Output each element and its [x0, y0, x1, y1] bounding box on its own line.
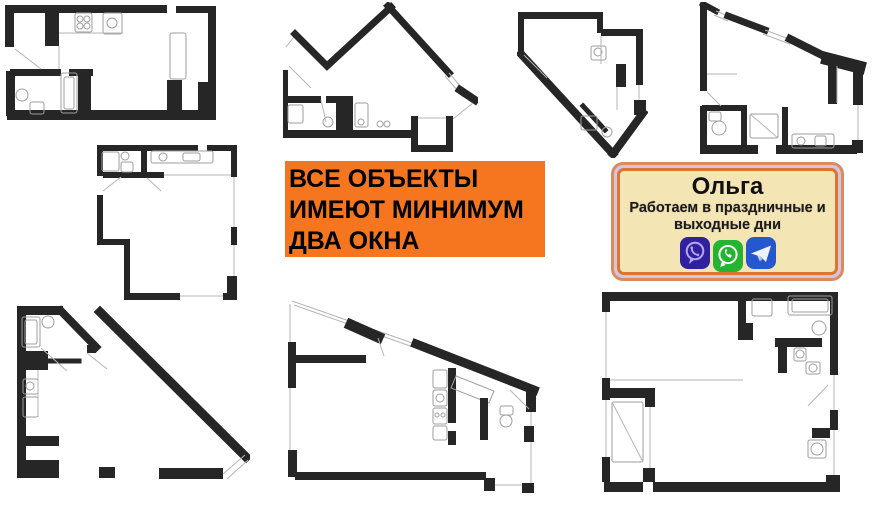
floor-plan-8: [600, 290, 846, 505]
banner-line-2: ИМЕЮТ МИНИМУМ: [289, 195, 545, 226]
banner-line-1: ВСЕ ОБЪЕКТЫ: [289, 164, 545, 195]
viber-icon[interactable]: [680, 237, 710, 269]
contact-subtitle-line2: выходные дни: [620, 217, 835, 234]
floor-plan-7: [288, 298, 540, 500]
contact-card-frame: Ольга Работаем в праздничные и выходные …: [614, 165, 841, 278]
banner-line-3: ДВА ОКНА: [289, 226, 545, 257]
floor-plan-3: [517, 10, 648, 158]
floor-plan-2: [283, 2, 478, 153]
banner-min-two-windows: ВСЕ ОБЪЕКТЫ ИМЕЮТ МИНИМУМ ДВА ОКНА: [285, 161, 545, 257]
contact-card-body: Ольга Работаем в праздничные и выходные …: [617, 168, 838, 275]
contact-name: Ольга: [620, 174, 835, 200]
contact-card: Ольга Работаем в праздничные и выходные …: [611, 162, 844, 281]
floor-plan-6: [15, 303, 250, 490]
floor-plan-5: [95, 143, 238, 300]
whatsapp-icon[interactable]: [713, 240, 743, 272]
telegram-icon[interactable]: [746, 237, 776, 269]
contact-subtitle-line1: Работаем в праздничные и: [620, 200, 835, 217]
listing-collage: ВСЕ ОБЪЕКТЫ ИМЕЮТ МИНИМУМ ДВА ОКНА Ольга…: [0, 0, 888, 512]
messenger-icons-row: [620, 237, 835, 272]
floor-plan-1: [3, 3, 216, 123]
floor-plan-4: [697, 2, 868, 155]
